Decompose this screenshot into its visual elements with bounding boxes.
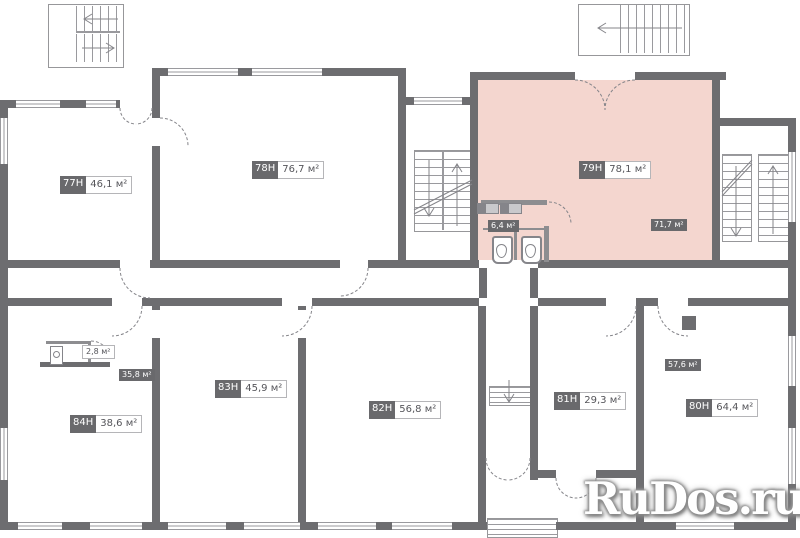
door-arc	[486, 458, 508, 480]
window	[788, 336, 796, 386]
wall-segment	[312, 298, 479, 306]
room-id: 81H	[554, 392, 580, 410]
wall-segment	[152, 146, 160, 268]
stair-flight	[620, 5, 687, 53]
window	[252, 68, 322, 76]
room-label-78H: 78H 76,7 м²	[252, 161, 324, 179]
toilet-icon	[492, 236, 513, 264]
area-label-71-7: 71,7 м²	[651, 219, 687, 231]
room-id: 79H	[579, 161, 605, 179]
room-id: 84H	[70, 415, 96, 433]
wc-wall	[544, 226, 549, 262]
wall-segment	[712, 118, 796, 126]
room-area: 38,6 м²	[96, 415, 142, 433]
room-area: 46,1 м²	[86, 176, 132, 194]
watermark: RuDos.ru	[583, 472, 800, 525]
corridor-steps	[489, 386, 531, 406]
wall-segment	[152, 338, 160, 530]
door-arc	[340, 268, 368, 296]
wall-segment	[150, 260, 340, 268]
wall-segment	[0, 260, 120, 268]
window	[86, 100, 116, 108]
door-arc	[120, 108, 136, 124]
door-arc	[508, 458, 530, 480]
toilet-icon	[521, 236, 542, 264]
wall-segment	[0, 298, 112, 306]
wall-segment	[538, 470, 556, 478]
wall-segment	[636, 298, 658, 306]
room-id: 77H	[60, 176, 86, 194]
wall-segment	[530, 306, 538, 480]
tiny-area-label	[500, 203, 522, 214]
wall-segment	[688, 298, 796, 306]
toilet-bowl-icon	[496, 244, 507, 258]
room-label-84H: 84H 38,6 м²	[70, 415, 142, 433]
room-id: 80H	[686, 399, 712, 417]
window	[0, 428, 8, 480]
window	[16, 100, 60, 108]
stair-landing-line	[76, 31, 120, 33]
room-label-79H: 79H 78,1 м²	[579, 161, 651, 179]
wall-segment	[152, 306, 160, 310]
door-arc	[606, 306, 636, 336]
stair-divider	[442, 150, 444, 230]
wall-segment	[368, 260, 479, 268]
window	[318, 522, 376, 530]
window	[392, 522, 452, 530]
wall-segment	[538, 260, 796, 268]
window	[168, 522, 226, 530]
wc-wall	[514, 230, 517, 260]
room-area: 78,1 м²	[605, 161, 651, 179]
staircase-left-stairwell	[414, 150, 474, 232]
column	[682, 316, 696, 330]
stair-flight	[76, 6, 120, 31]
staircase-right-stairwell	[758, 154, 790, 242]
door-arc	[282, 306, 312, 336]
area-label-closet: 2,8 м²	[82, 345, 115, 359]
door-arc	[136, 108, 152, 124]
area-label-57-6: 57,6 м²	[665, 359, 701, 371]
room-label-83H: 83H 45,9 м²	[215, 380, 287, 398]
room-area: 64,4 м²	[712, 399, 758, 417]
wall-segment	[712, 80, 720, 268]
room-area: 29,3 м²	[580, 392, 626, 410]
toilet-bowl-icon	[525, 244, 536, 258]
wall-segment	[470, 72, 478, 268]
room-id: 83H	[215, 380, 241, 398]
wall-segment	[298, 306, 306, 310]
room-id: 82H	[369, 401, 395, 419]
window	[90, 522, 142, 530]
room-label-80H: 80H 64,4 м²	[686, 399, 758, 417]
door-arc	[112, 306, 142, 336]
entrance-steps	[487, 518, 558, 538]
closet-wall	[46, 341, 91, 344]
area-label-35-8: 35,8 м²	[119, 369, 155, 381]
door-arc	[160, 118, 188, 146]
wall-segment	[152, 76, 160, 118]
window	[0, 118, 8, 164]
wall-segment	[538, 298, 606, 306]
wall-segment	[530, 268, 538, 298]
wall-segment	[298, 338, 306, 530]
wall-segment	[478, 306, 486, 530]
staircase-right-stairwell	[722, 154, 752, 242]
window	[244, 522, 300, 530]
door-arc	[556, 478, 576, 498]
stair-flight	[76, 34, 120, 62]
water-heater-icon	[50, 346, 63, 365]
window	[788, 152, 796, 222]
window	[168, 68, 238, 76]
heater-knob-icon	[53, 351, 60, 358]
area-label-wc: 6,4 м²	[488, 220, 519, 232]
room-area: 56,8 м²	[395, 401, 441, 419]
door-arc	[120, 268, 150, 298]
wall-segment	[479, 268, 487, 298]
window	[18, 522, 62, 530]
floor-plan: 77H 46,1 м² 78H 76,7 м² 79H 78,1 м² 80H …	[0, 0, 800, 538]
room-area: 45,9 м²	[241, 380, 287, 398]
room-label-77H: 77H 46,1 м²	[60, 176, 132, 194]
wall-segment	[635, 72, 726, 80]
room-label-81H: 81H 29,3 м²	[554, 392, 626, 410]
room-label-82H: 82H 56,8 м²	[369, 401, 441, 419]
room-id: 78H	[252, 161, 278, 179]
window	[414, 97, 462, 105]
wall-segment	[470, 72, 575, 80]
tiny-area-label	[477, 203, 499, 214]
wall-segment	[142, 298, 282, 306]
room-area: 76,7 м²	[278, 161, 324, 179]
